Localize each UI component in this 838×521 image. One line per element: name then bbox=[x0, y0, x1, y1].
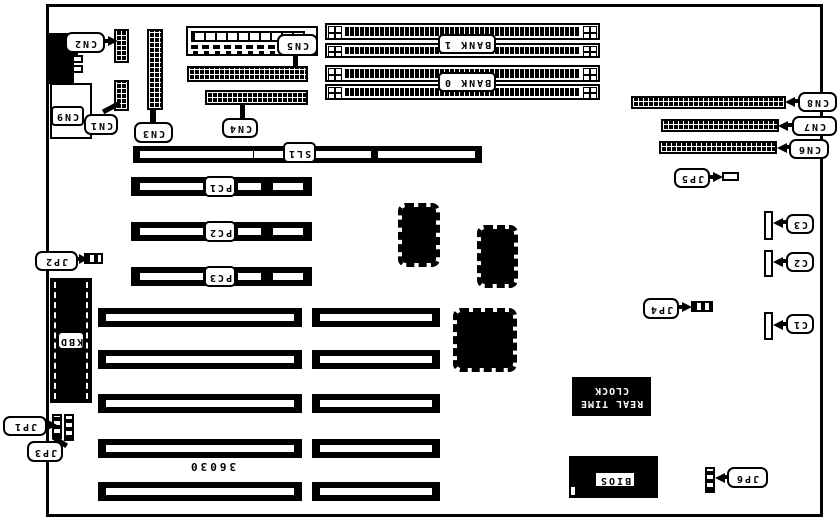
cn4-header bbox=[205, 90, 308, 105]
capacitor-c3 bbox=[764, 211, 773, 240]
jp1-arrow bbox=[48, 420, 57, 430]
isa-slot-long bbox=[98, 439, 302, 458]
jp1-label: JP1 bbox=[13, 421, 37, 431]
cn2-arrow bbox=[108, 36, 118, 46]
cn4-pointer bbox=[240, 103, 245, 119]
jp4-callout: JP4 bbox=[643, 298, 679, 319]
rtc-label-line1: REAL TIME bbox=[580, 398, 643, 409]
isa-slot-short bbox=[312, 308, 440, 327]
capacitor-c2 bbox=[764, 250, 773, 277]
jp2-label: JP2 bbox=[44, 256, 68, 266]
jp3-jumper bbox=[64, 414, 74, 441]
isa-slot-long bbox=[98, 308, 302, 327]
c2-label: C2 bbox=[792, 257, 808, 267]
cn7-header bbox=[661, 119, 779, 132]
board-number: 36030 bbox=[188, 460, 236, 473]
connector-tab bbox=[72, 65, 83, 73]
cn6-callout: CN6 bbox=[789, 139, 829, 159]
cn6-header bbox=[659, 141, 777, 154]
keyboard-connector-block bbox=[48, 58, 74, 84]
cn2-label: CN2 bbox=[73, 38, 97, 48]
pc3-label: PC3 bbox=[208, 272, 232, 282]
qfp-chip bbox=[398, 203, 440, 267]
cn1-label: CN1 bbox=[89, 120, 113, 130]
bank1-label-box: BANK 1 bbox=[438, 34, 496, 54]
isa-slot-short bbox=[312, 482, 440, 501]
cn8-header bbox=[631, 96, 786, 109]
isa-slot-long bbox=[98, 482, 302, 501]
kbd-pin-row bbox=[54, 282, 56, 399]
cn5-pointed-header bbox=[187, 66, 308, 82]
c1-label: C1 bbox=[792, 319, 808, 329]
rtc-label-line2: CLOCK bbox=[594, 385, 629, 396]
jp5-callout: JP5 bbox=[674, 168, 710, 188]
cn5-pointer bbox=[293, 55, 298, 68]
cn9-callout: CN9 bbox=[51, 106, 84, 126]
isa-slot-long bbox=[98, 394, 302, 413]
jp3-label: JP3 bbox=[33, 447, 57, 457]
c3-callout: C3 bbox=[786, 214, 814, 234]
jp5-jumper bbox=[722, 172, 739, 181]
jp2-callout: JP2 bbox=[35, 251, 78, 271]
bank0-label-box: BANK 0 bbox=[438, 72, 496, 92]
bank0-label: BANK 0 bbox=[443, 77, 491, 87]
cn8-callout: CN8 bbox=[798, 92, 837, 112]
cn2-callout: CN2 bbox=[65, 32, 105, 53]
jp2-arrow bbox=[79, 254, 88, 264]
pc2-label: PC2 bbox=[208, 227, 232, 237]
pc3-label-box: PC3 bbox=[204, 266, 236, 287]
sl1-label-box: SL1 bbox=[283, 142, 316, 163]
pc1-label: PC1 bbox=[208, 182, 232, 192]
cn4-callout: CN4 bbox=[222, 118, 258, 138]
kbd-label: KBD bbox=[59, 336, 83, 346]
isa-slot-short bbox=[312, 394, 440, 413]
qfp-chip-large bbox=[453, 308, 517, 372]
cn3-label: CN3 bbox=[141, 128, 165, 138]
motherboard-diagram: BANK 1 BANK 0 SL1 PC1 PC2 PC3 bbox=[0, 0, 838, 521]
bios-label-box: BIOS bbox=[594, 471, 636, 488]
jp3-callout: JP3 bbox=[27, 441, 63, 462]
pc2-label-box: PC2 bbox=[204, 221, 236, 242]
cn7-label: CN7 bbox=[802, 121, 826, 131]
jp1-callout: JP1 bbox=[3, 416, 47, 436]
c2-callout: C2 bbox=[786, 252, 814, 272]
bank1-label: BANK 1 bbox=[443, 39, 491, 49]
jp5-label: JP5 bbox=[680, 173, 704, 183]
cn4-label: CN4 bbox=[228, 123, 252, 133]
cn3-callout: CN3 bbox=[134, 122, 173, 143]
cn5-label: CN5 bbox=[285, 40, 309, 50]
cn1-callout: CN1 bbox=[84, 114, 118, 135]
cn3-pointer bbox=[150, 109, 156, 123]
cn7-callout: CN7 bbox=[792, 116, 837, 136]
isa-slot-long bbox=[98, 350, 302, 369]
jp6-label: JP6 bbox=[735, 473, 759, 483]
isa-slot-short bbox=[312, 350, 440, 369]
capacitor-c1 bbox=[764, 312, 773, 340]
jp6-jumper bbox=[705, 467, 715, 493]
connector-tab bbox=[72, 55, 83, 63]
c3-label: C3 bbox=[792, 219, 808, 229]
rtc-chip: REAL TIMECLOCK bbox=[572, 377, 651, 416]
cn2-header bbox=[114, 29, 129, 63]
qfp-chip bbox=[477, 225, 518, 288]
bios-label: BIOS bbox=[599, 475, 631, 485]
jp4-label: JP4 bbox=[649, 304, 673, 314]
kbd-pin-row bbox=[86, 282, 88, 399]
pc1-label-box: PC1 bbox=[204, 176, 236, 197]
kbd-label-box: KBD bbox=[57, 331, 85, 350]
jp6-callout: JP6 bbox=[727, 467, 768, 488]
c1-callout: C1 bbox=[786, 314, 814, 334]
cn9-label: CN9 bbox=[55, 111, 79, 121]
sl1-label: SL1 bbox=[287, 148, 311, 158]
cn6-label: CN6 bbox=[797, 144, 821, 154]
cn5-callout: CN5 bbox=[277, 34, 318, 56]
cn3-header bbox=[147, 29, 163, 110]
isa-slot-short bbox=[312, 439, 440, 458]
bios-notch bbox=[571, 487, 575, 495]
jp4-jumper bbox=[691, 301, 713, 312]
cn8-label: CN8 bbox=[805, 97, 829, 107]
jp4-arrow bbox=[682, 302, 692, 312]
jp5-arrow bbox=[713, 172, 723, 182]
